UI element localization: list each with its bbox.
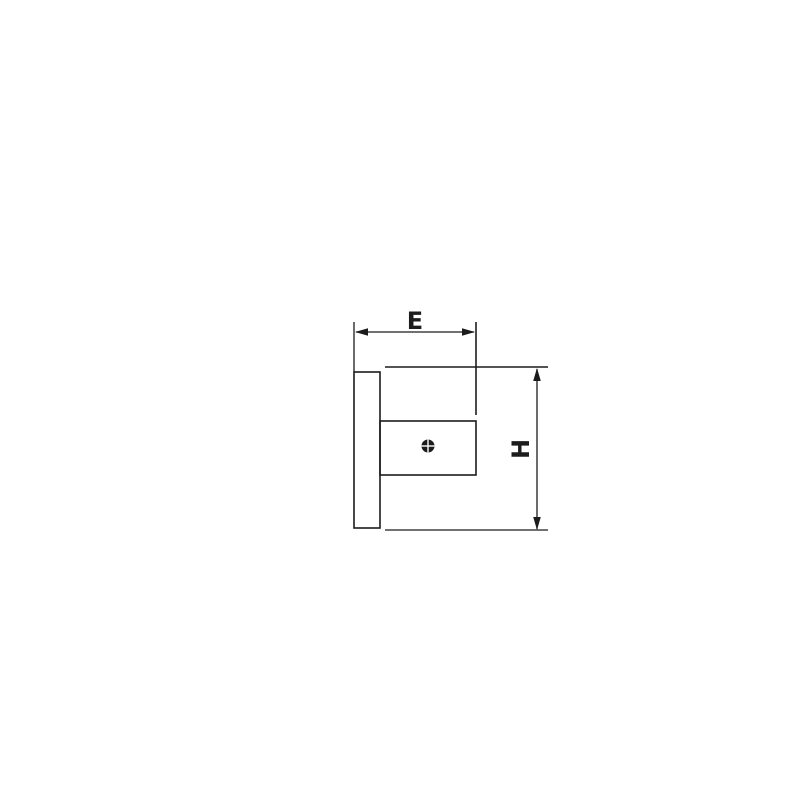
bracket-side-view (354, 322, 548, 528)
e-dimension-label: E (407, 307, 423, 335)
crosshead-screw-icon (422, 440, 435, 453)
wall-plate-outline (354, 372, 380, 528)
h-arrow-up (533, 368, 541, 381)
h-arrow-down (533, 517, 541, 530)
h-dimension-label: H (507, 439, 535, 459)
e-arrow-right (462, 328, 475, 336)
e-arrow-left (355, 328, 368, 336)
dimension-width: E (354, 307, 475, 372)
technical-drawing: E H (0, 0, 800, 800)
dimension-height: H (385, 368, 548, 530)
drawing-canvas: E H (0, 0, 800, 800)
